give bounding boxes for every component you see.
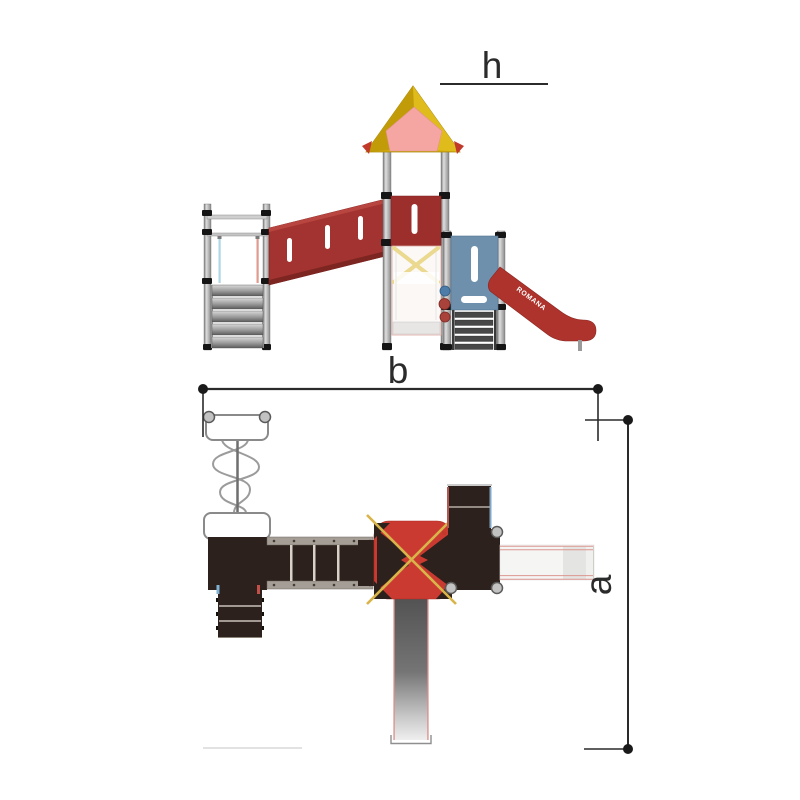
blue-panel (451, 236, 498, 310)
slide-support (578, 340, 582, 351)
tower-roof (362, 86, 464, 154)
climbing-holds (439, 286, 450, 322)
depth-label: a (578, 574, 619, 595)
dim-endpoint (623, 415, 633, 425)
red-pole (257, 238, 259, 283)
plan-platform-right (442, 527, 503, 594)
post-marker (492, 527, 503, 538)
top-bar (207, 215, 267, 219)
dim-endpoint (623, 744, 633, 754)
plan-stairs-down (216, 585, 264, 638)
pole-clamp (256, 236, 260, 239)
drawing-canvas: ROMANA h (0, 0, 800, 800)
dim-endpoint (198, 384, 208, 394)
plan-platform-left (208, 537, 267, 590)
bridge-rail (267, 581, 373, 589)
height-label: h (482, 45, 503, 86)
dimension-a: a (578, 415, 633, 754)
tower-red-panel (391, 196, 441, 246)
mid-bar (207, 233, 267, 236)
left-climbing-frame (202, 204, 271, 350)
blue-pole-marker (217, 585, 220, 594)
dimension-h: h (440, 45, 548, 86)
dark-steps (452, 310, 497, 350)
plan-view (203, 412, 594, 749)
panel-handle (461, 296, 487, 303)
blue-pole (219, 238, 221, 283)
dim-endpoint (593, 384, 603, 394)
panel-slot (412, 204, 418, 234)
post-marker (204, 412, 215, 423)
elevation-view: ROMANA h (202, 45, 596, 351)
post-marker (492, 583, 503, 594)
plan-tower (358, 515, 456, 604)
bridge-rail (267, 537, 373, 545)
playground-technical-drawing: ROMANA h (0, 0, 800, 800)
corner-dot (442, 531, 446, 535)
post (204, 204, 211, 350)
plan-steps-up (447, 485, 492, 529)
width-label: b (388, 350, 409, 391)
pole-clamp (218, 236, 222, 239)
red-pole-marker (257, 585, 260, 594)
plan-net-band (391, 589, 431, 744)
panel-slot (471, 246, 478, 282)
serpentine-climber (204, 412, 271, 540)
climbing-net (392, 246, 441, 335)
post-marker (446, 583, 457, 594)
post-marker (260, 412, 271, 423)
plan-bridge (267, 537, 373, 589)
stairs (212, 285, 263, 348)
ramp-panel (269, 199, 386, 285)
